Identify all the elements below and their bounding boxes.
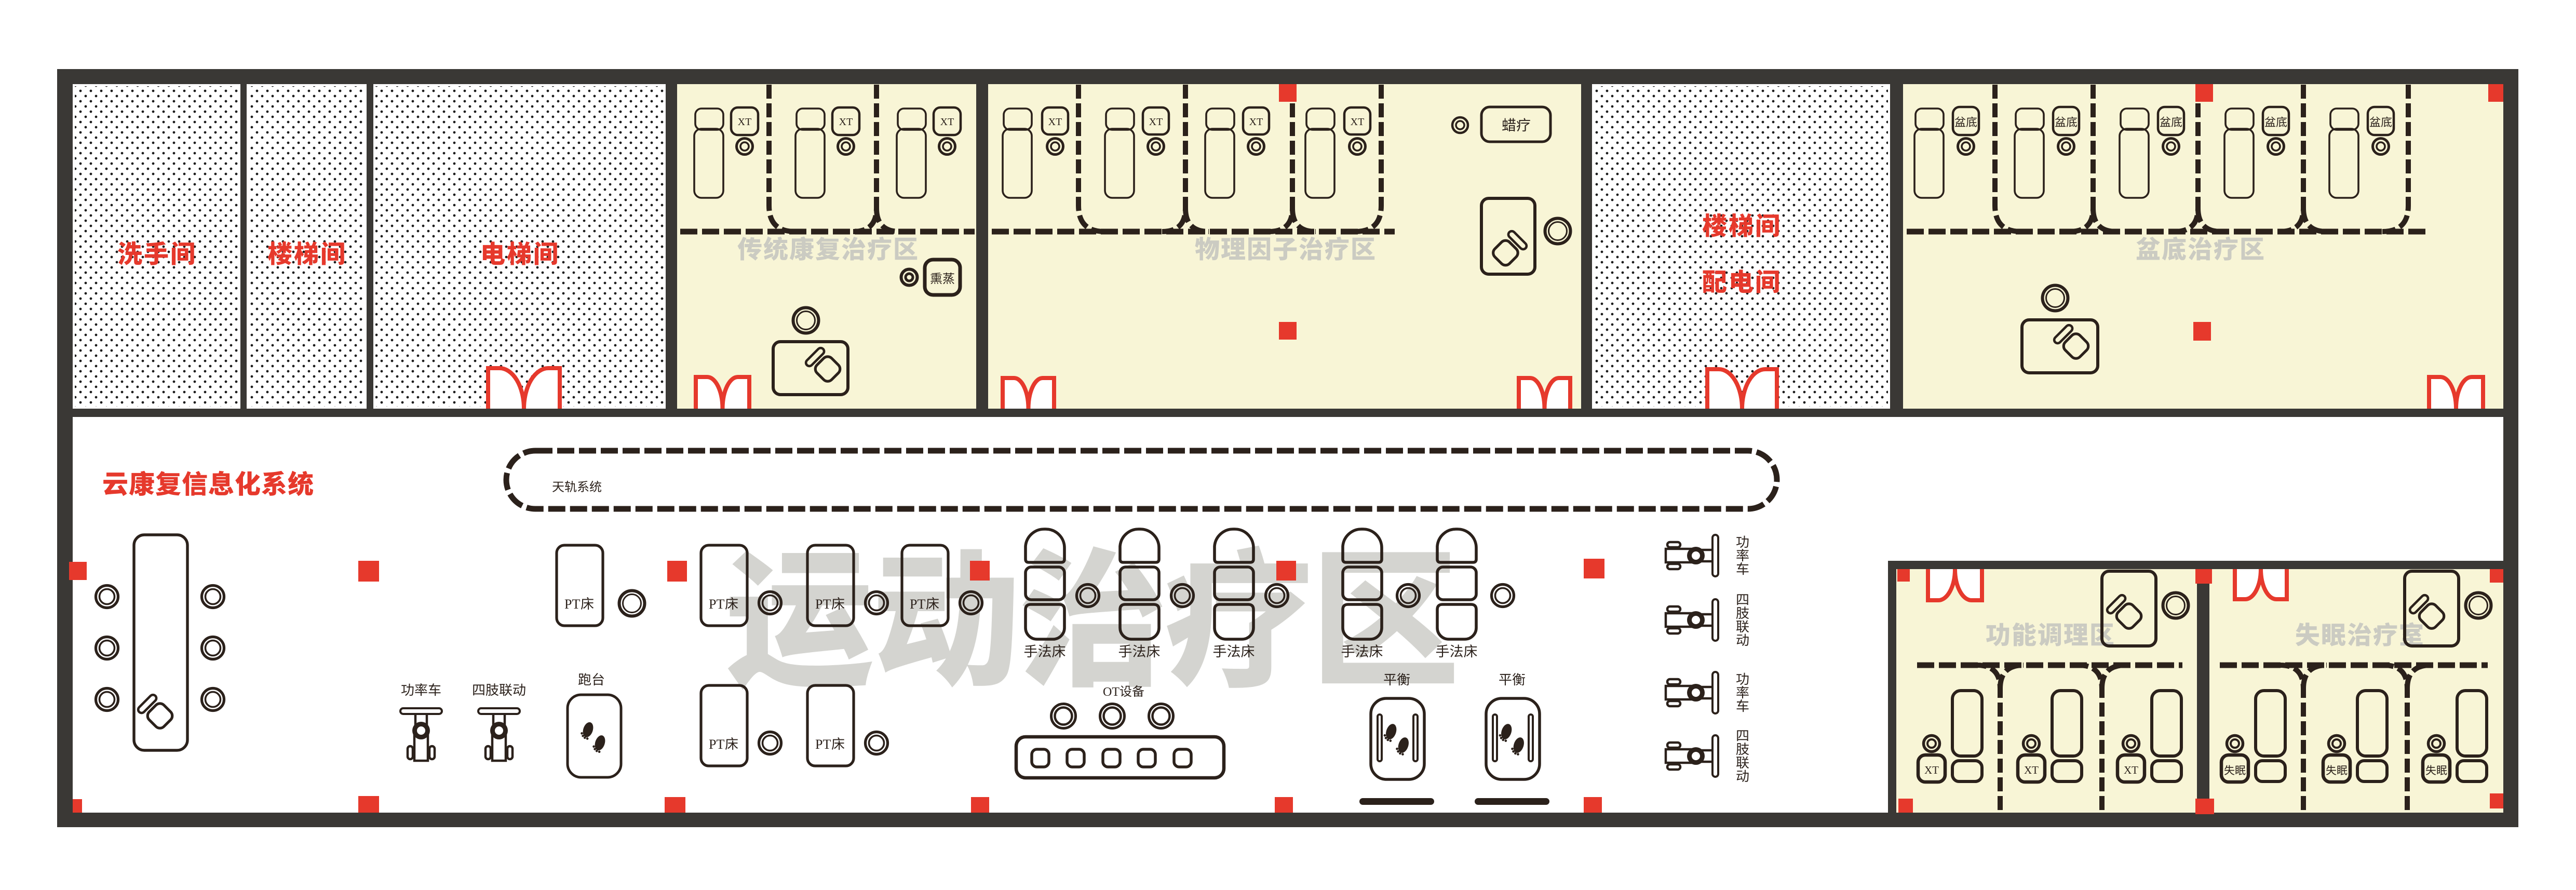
svg-text:XT: XT xyxy=(839,116,853,128)
svg-text:PT: PT xyxy=(910,597,925,612)
svg-text:XT: XT xyxy=(2024,764,2039,776)
svg-text:XT: XT xyxy=(1924,764,1939,776)
svg-text:XT: XT xyxy=(1149,116,1163,128)
svg-text:OT: OT xyxy=(1103,685,1120,699)
svg-text:PT: PT xyxy=(709,597,724,612)
svg-text:XT: XT xyxy=(1351,116,1365,128)
svg-text:XT: XT xyxy=(1249,116,1263,128)
svg-text:XT: XT xyxy=(2124,764,2138,776)
svg-text:XT: XT xyxy=(1048,116,1062,128)
svg-text:XT: XT xyxy=(940,116,954,128)
svg-text:PT: PT xyxy=(564,597,580,612)
svg-text:PT: PT xyxy=(815,737,831,752)
svg-text:PT: PT xyxy=(709,737,724,752)
svg-text:PT: PT xyxy=(815,597,831,612)
svg-text:XT: XT xyxy=(738,116,752,128)
